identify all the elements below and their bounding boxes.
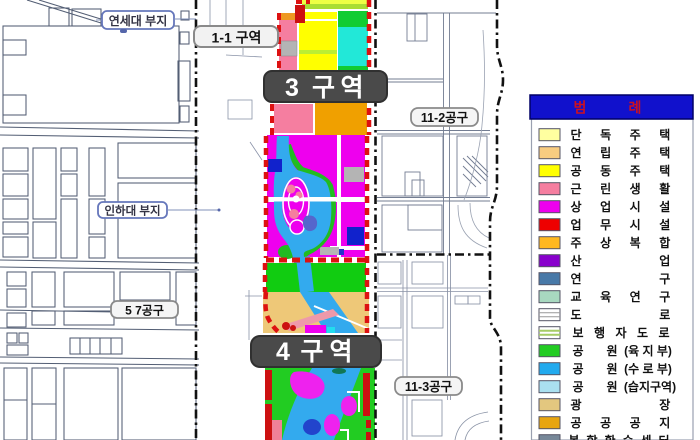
svg-text:5 7공구: 5 7공구 — [125, 304, 164, 318]
svg-text:11-2공구: 11-2공구 — [421, 111, 469, 125]
svg-text:3구역: 3구역 — [285, 74, 363, 102]
svg-text:연세대 부지: 연세대 부지 — [109, 13, 168, 28]
svg-text:4구역: 4구역 — [276, 338, 352, 366]
svg-text:1-1 구역: 1-1 구역 — [212, 30, 262, 46]
svg-text:인하대 부지: 인하대 부지 — [104, 204, 160, 218]
svg-text:11-3공구: 11-3공구 — [405, 380, 453, 394]
